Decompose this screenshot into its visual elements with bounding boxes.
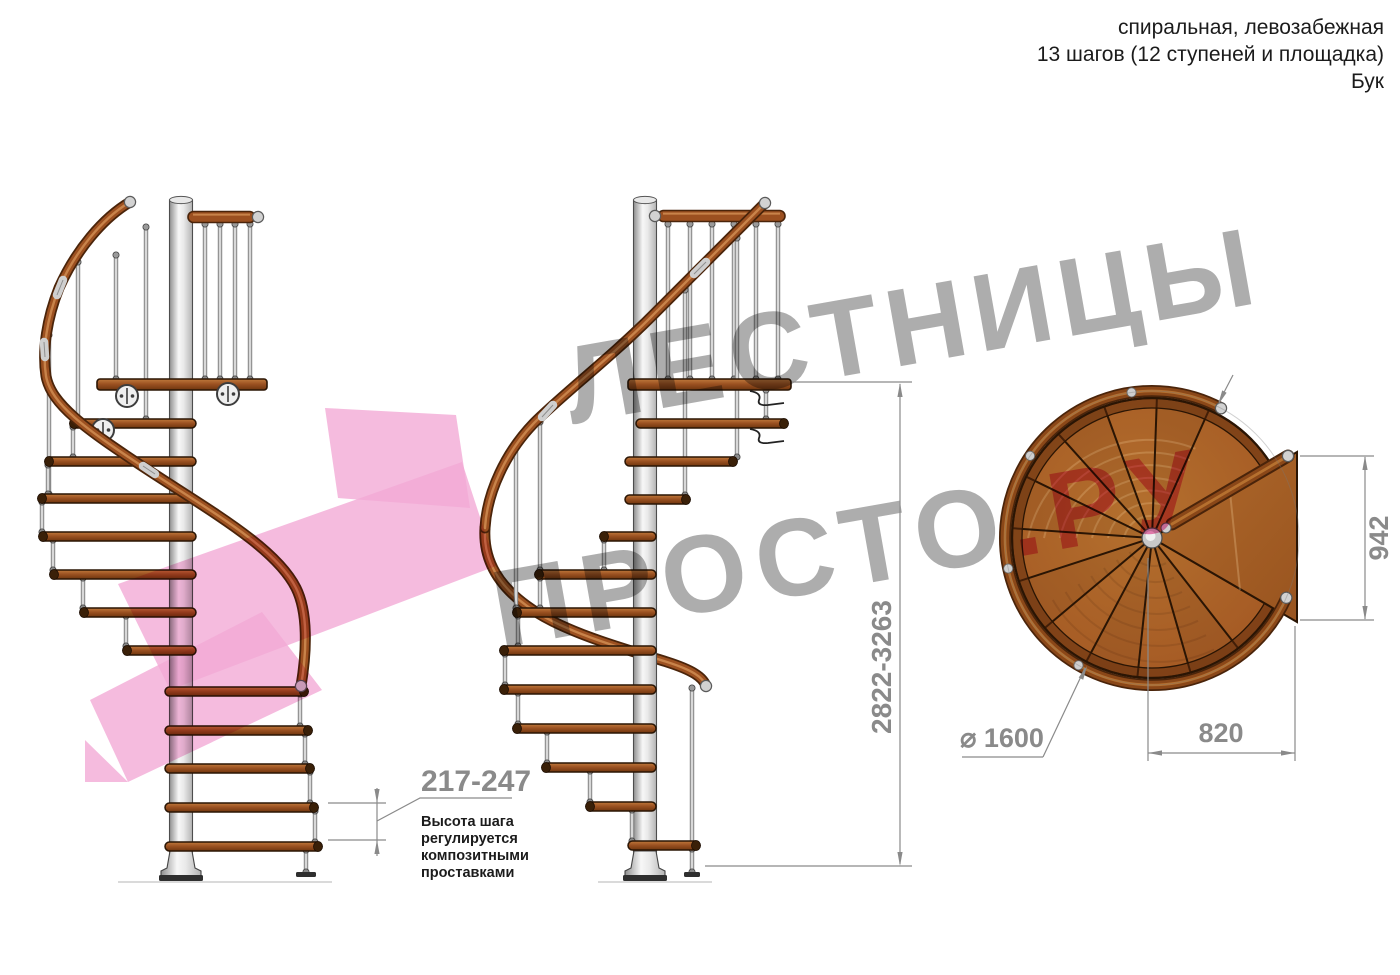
watermark-word-prosto: ПРОСТО [483, 460, 1020, 672]
title-material: Бук [1037, 68, 1384, 95]
dim-landing-width: 820 [1198, 718, 1243, 748]
step-note-line-1: Высота шага [421, 814, 515, 830]
dim-step-height: 217-247 [421, 765, 531, 798]
dim-landing-height: 942 [1364, 515, 1394, 560]
step-note-line-4: проставками [421, 865, 514, 881]
technical-drawing-page: ЛЕСТНИЦЫ ПРОСТО.РУ [0, 0, 1400, 975]
title-block: спиральная, левозабежная 13 шагов (12 ст… [1037, 14, 1384, 95]
dim-total-height: 2822-3263 [866, 600, 897, 734]
staircase-drawing: ЛЕСТНИЦЫ ПРОСТО.РУ [0, 0, 1400, 975]
step-note-line-3: композитными [421, 848, 529, 864]
dim-diameter: ⌀ 1600 [960, 723, 1044, 753]
title-steps: 13 шагов (12 ступеней и площадка) [1037, 41, 1384, 68]
step-note-line-2: регулируется [421, 831, 518, 847]
title-type: спиральная, левозабежная [1037, 14, 1384, 41]
